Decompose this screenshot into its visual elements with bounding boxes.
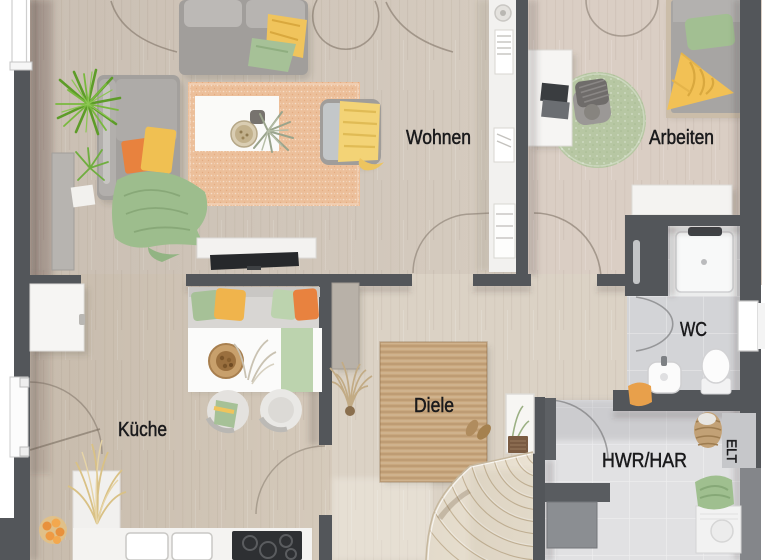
svg-text:HWR/HAR: HWR/HAR xyxy=(602,450,687,472)
svg-text:WC: WC xyxy=(680,319,707,341)
svg-text:ELT: ELT xyxy=(724,439,740,463)
svg-text:Arbeiten: Arbeiten xyxy=(649,127,714,149)
svg-text:Küche: Küche xyxy=(118,419,167,441)
svg-text:Diele: Diele xyxy=(414,395,454,417)
svg-text:Wohnen: Wohnen xyxy=(406,127,471,149)
